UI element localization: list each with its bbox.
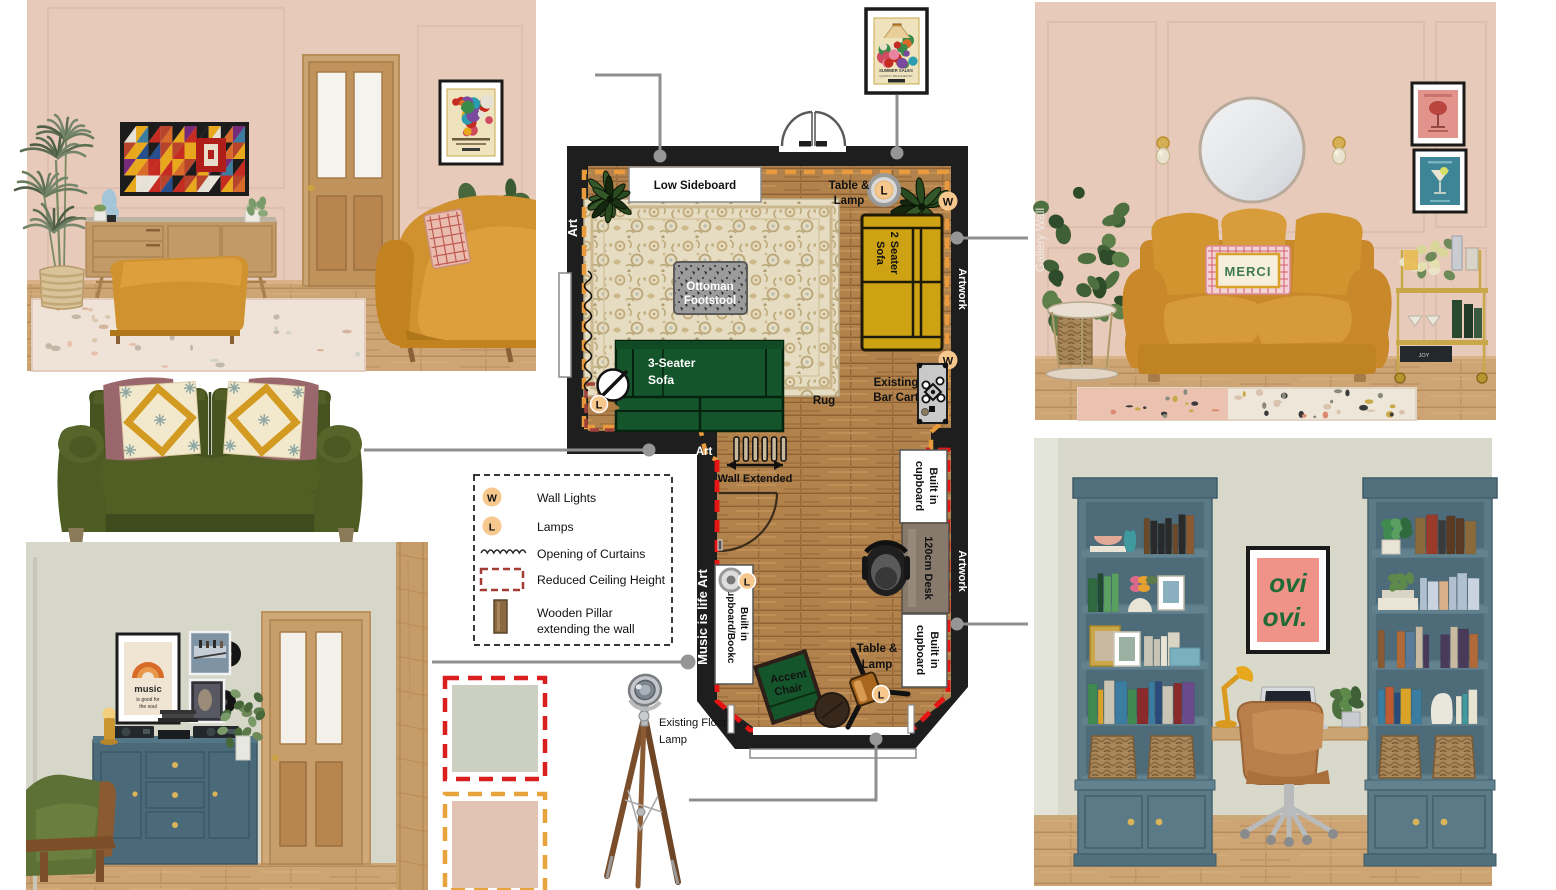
svg-text:ovi.: ovi. (1263, 602, 1308, 632)
svg-text:Wall Extended: Wall Extended (718, 473, 793, 485)
svg-text:JOY: JOY (1419, 353, 1430, 359)
svg-text:Built in: Built in (738, 607, 749, 641)
svg-text:Lamp: Lamp (834, 195, 865, 207)
svg-text:Art: Art (696, 446, 713, 458)
svg-text:MERCI: MERCI (1225, 264, 1272, 279)
svg-text:music: music (134, 684, 161, 695)
svg-text:Gallery Wall: Gallery Wall (1033, 208, 1047, 272)
svg-text:Low Sideboard: Low Sideboard (654, 180, 736, 192)
svg-text:Rug: Rug (813, 395, 835, 407)
svg-text:cupboard: cupboard (914, 625, 926, 675)
svg-text:Footstool: Footstool (684, 295, 736, 307)
svg-text:Artwork: Artwork (956, 268, 968, 310)
svg-text:Ottoman: Ottoman (686, 281, 733, 293)
svg-text:cupboard/Bookc: cupboard/Bookc (725, 585, 736, 664)
svg-text:2 Seater: 2 Seater (888, 232, 900, 276)
svg-text:Art: Art (566, 218, 580, 237)
svg-text:Bar Cart: Bar Cart (873, 392, 919, 404)
svg-text:Existing Floor: Existing Floor (659, 717, 727, 729)
svg-text:Sofa: Sofa (648, 373, 674, 387)
svg-text:is good for: is good for (136, 697, 160, 703)
svg-text:Existing: Existing (874, 377, 919, 389)
svg-text:L: L (489, 522, 496, 534)
svg-text:QUICKLY REACHED BY: QUICKLY REACHED BY (879, 74, 912, 78)
svg-text:L: L (744, 577, 751, 589)
svg-text:Lamp: Lamp (659, 734, 687, 746)
svg-text:L: L (596, 400, 603, 412)
svg-text:ovi: ovi (1269, 568, 1307, 598)
svg-text:Table &: Table & (829, 180, 870, 192)
svg-text:Opening of Curtains: Opening of Curtains (537, 547, 645, 561)
svg-text:Built in: Built in (928, 631, 940, 669)
svg-text:the soul: the soul (139, 704, 157, 710)
svg-text:W: W (487, 493, 497, 505)
svg-text:Reduced Ceiling Height: Reduced Ceiling Height (537, 573, 666, 587)
svg-text:Wall Lights: Wall Lights (537, 491, 596, 505)
svg-text:W: W (943, 197, 954, 209)
svg-text:SUMMER SALES: SUMMER SALES (879, 68, 913, 73)
svg-text:Lamps: Lamps (537, 520, 574, 534)
svg-text:120cm Desk: 120cm Desk (922, 536, 934, 600)
svg-text:Lamp: Lamp (862, 659, 893, 671)
svg-text:cupboard: cupboard (913, 461, 925, 511)
svg-text:Wooden Pillar: Wooden Pillar (537, 606, 613, 620)
svg-text:extending the wall: extending the wall (537, 622, 635, 636)
svg-text:Music is life Art: Music is life Art (695, 569, 710, 665)
svg-text:Built in: Built in (927, 467, 939, 505)
svg-text:3-Seater: 3-Seater (648, 356, 696, 370)
svg-text:Artwork: Artwork (956, 550, 968, 592)
svg-text:Table &: Table & (857, 643, 898, 655)
svg-text:Sofa: Sofa (874, 241, 886, 266)
svg-text:L: L (878, 690, 885, 702)
svg-text:L: L (880, 186, 887, 198)
